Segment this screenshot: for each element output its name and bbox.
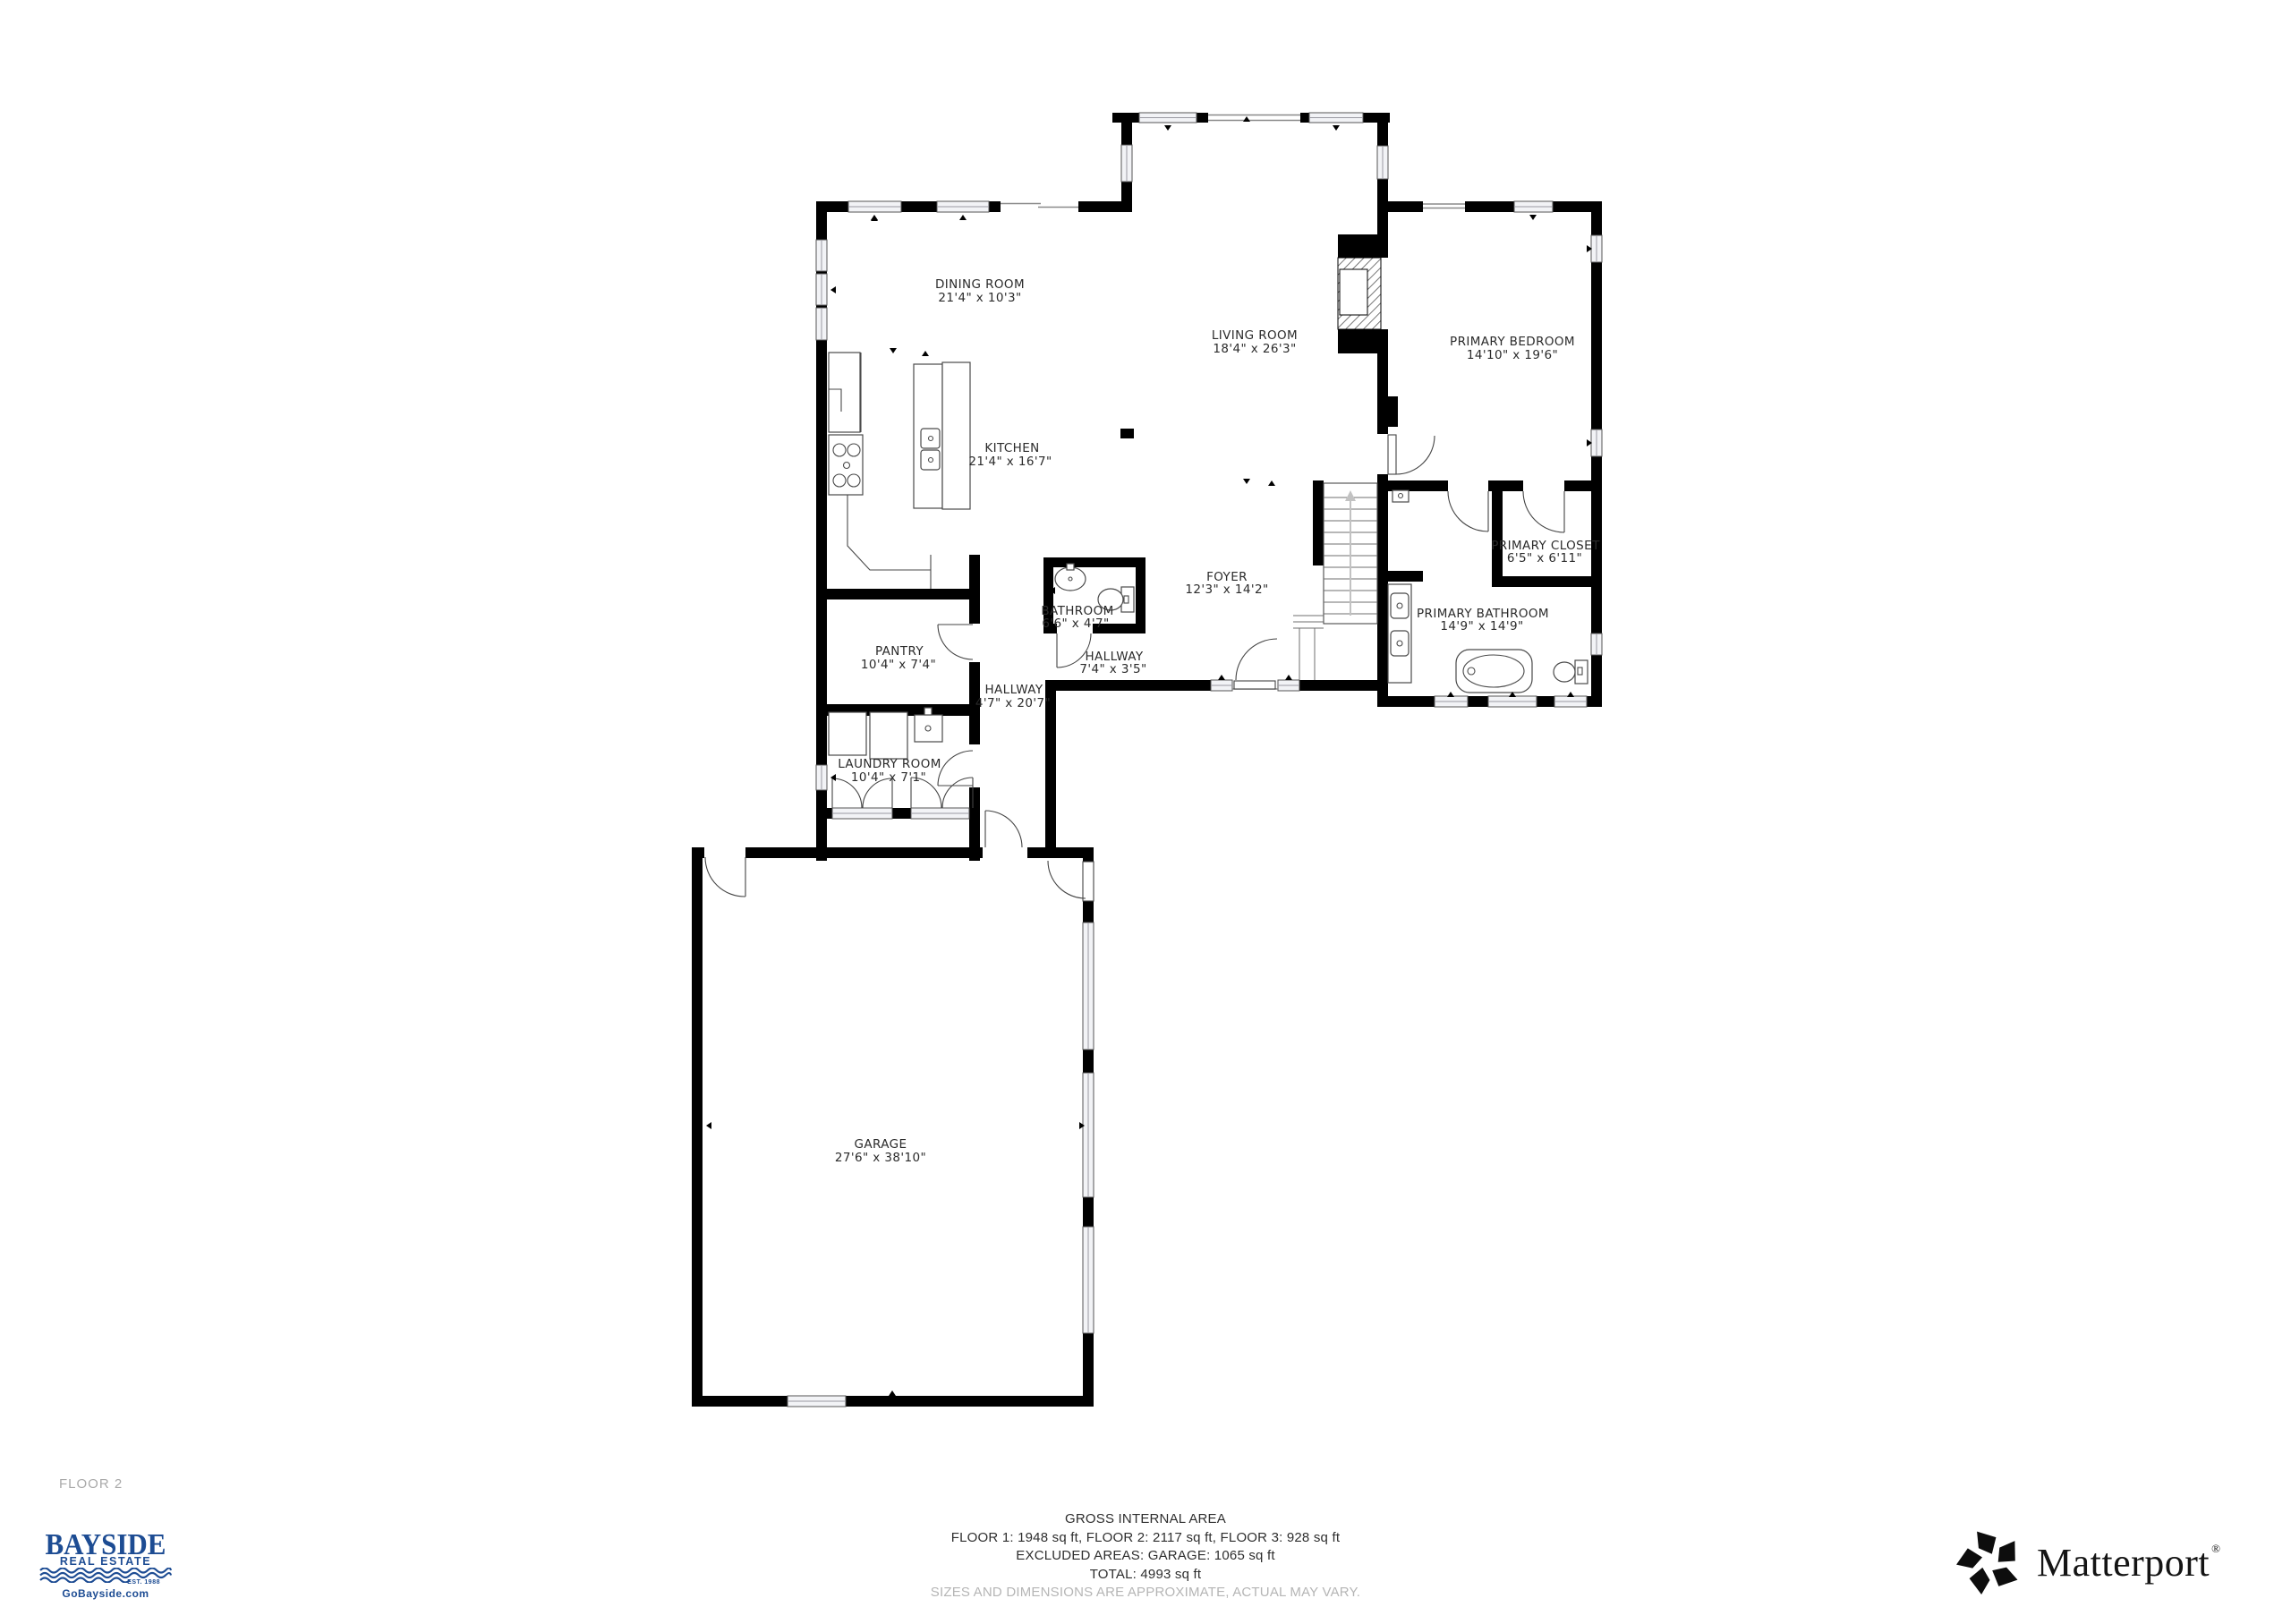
window: [816, 240, 827, 271]
walls: [692, 113, 1602, 1407]
window: [1435, 696, 1468, 707]
window: [1309, 113, 1363, 123]
window: [1083, 923, 1094, 1050]
floor-plan: DINING ROOM 21'4" x 10'3" LIVING ROOM 18…: [0, 0, 2291, 1620]
area-title: GROSS INTERNAL AREA: [0, 1510, 2291, 1529]
room-dims-primary-bathroom: 14'9" x 14'9": [1440, 619, 1523, 633]
registered-mark: ®: [2211, 1542, 2220, 1555]
room-label-living-room: LIVING ROOM: [1212, 328, 1298, 343]
area-floors: FLOOR 1: 1948 sq ft, FLOOR 2: 2117 sq ft…: [0, 1529, 2291, 1548]
matterport-logo: Matterport®: [1955, 1526, 2221, 1598]
window: [1121, 145, 1132, 182]
window: [1211, 680, 1232, 691]
window: [937, 201, 989, 212]
room-dims-primary-bedroom: 14'10" x 19'6": [1467, 348, 1558, 362]
window: [1083, 1073, 1094, 1197]
room-dims-living-room: 18'4" x 26'3": [1213, 342, 1296, 356]
room-label-garage: GARAGE: [855, 1137, 907, 1152]
window: [848, 201, 901, 212]
window: [1083, 1227, 1094, 1333]
room-dims-primary-closet: 6'5" x 6'11": [1507, 551, 1582, 565]
area-total: TOTAL: 4993 sq ft: [0, 1566, 2291, 1585]
room-dims-hallway-long: 4'7" x 20'7": [975, 696, 1051, 710]
bayside-name: BAYSIDE: [38, 1532, 173, 1557]
matterport-name: Matterport®: [2037, 1540, 2221, 1586]
window: [816, 765, 827, 790]
room-label-laundry-room: LAUNDRY ROOM: [838, 757, 941, 771]
dryer: [870, 712, 907, 759]
room-dims-kitchen: 21'4" x 16'7": [968, 455, 1052, 469]
window: [1591, 633, 1602, 655]
room-label-dining-room: DINING ROOM: [935, 277, 1025, 292]
bathroom-sink: [1055, 564, 1086, 591]
area-disclaimer: SIZES AND DIMENSIONS ARE APPROXIMATE, AC…: [0, 1584, 2291, 1603]
window: [1278, 680, 1299, 691]
bathtub: [1456, 650, 1532, 693]
window: [1488, 696, 1537, 707]
window: [1591, 429, 1602, 456]
room-dims-laundry-room: 10'4" x 7'1": [851, 770, 926, 785]
window: [1514, 201, 1553, 212]
refrigerator: [829, 353, 860, 432]
room-dims-garage: 27'6" x 38'10": [835, 1151, 926, 1165]
staircase: [1293, 483, 1377, 680]
stove: [829, 435, 863, 495]
kitchen-island: [914, 362, 970, 509]
primary-toilet: [1554, 660, 1588, 684]
window: [788, 1396, 846, 1407]
room-dims-pantry: 10'4" x 7'4": [861, 658, 936, 672]
washer: [829, 712, 866, 755]
floor-label: FLOOR 2: [59, 1476, 123, 1492]
room-dims-bathroom: 6'6" x 4'7": [1042, 616, 1109, 631]
window: [816, 308, 827, 340]
room-dims-foyer: 12'3" x 14'2": [1185, 582, 1268, 597]
area-summary: GROSS INTERNAL AREA FLOOR 1: 1948 sq ft,…: [0, 1510, 2291, 1603]
primary-bath-small-sink: [1392, 490, 1409, 502]
room-dims-hallway-small: 7'4" x 3'5": [1079, 662, 1146, 676]
page: { "floor_plan": { "floor_label": "FLOOR …: [0, 0, 2291, 1620]
primary-vanity: [1388, 584, 1411, 683]
room-label-hallway-long: HALLWAY: [984, 683, 1043, 697]
window: [911, 808, 969, 819]
bayside-website: GoBayside.com: [38, 1587, 173, 1600]
bayside-logo: BAYSIDE REAL ESTATE EST. 1988 GoBayside.…: [38, 1532, 173, 1600]
room-dims-dining-room: 21'4" x 10'3": [938, 291, 1021, 305]
window: [1554, 696, 1587, 707]
matterport-icon: [1955, 1526, 2024, 1598]
room-label-primary-bedroom: PRIMARY BEDROOM: [1450, 335, 1575, 349]
window: [832, 808, 892, 819]
window: [1591, 235, 1602, 262]
direction-ticks: [706, 116, 1592, 1396]
room-label-pantry: PANTRY: [875, 644, 924, 659]
window: [1139, 113, 1197, 123]
room-label-kitchen: KITCHEN: [984, 441, 1039, 455]
area-excluded: EXCLUDED AREAS: GARAGE: 1065 sq ft: [0, 1547, 2291, 1566]
window: [1377, 146, 1388, 179]
window: [816, 274, 827, 305]
